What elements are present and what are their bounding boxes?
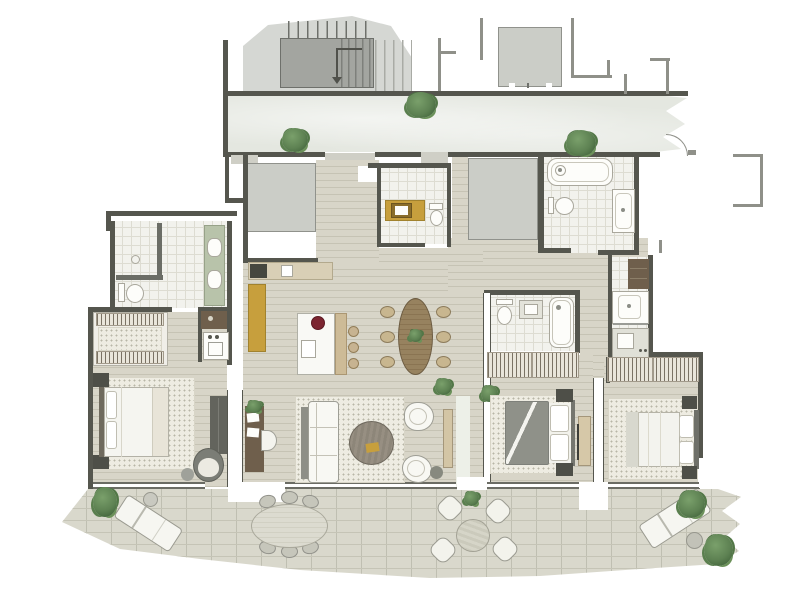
cabinet-shelf-line <box>630 268 647 269</box>
desk-paper <box>247 412 260 422</box>
window-bedroom3 <box>604 482 700 489</box>
shaft1-left-wall <box>243 155 248 263</box>
nightstand <box>682 466 697 479</box>
corridor-top-wall <box>223 91 688 96</box>
wall-fragment <box>659 240 662 253</box>
terrace-door-step <box>579 482 608 510</box>
floor-plan-canvas <box>0 0 800 600</box>
terrace-door-step <box>228 482 285 502</box>
fruit-bowl-icon <box>311 316 325 330</box>
shower-partition-v <box>157 223 162 280</box>
sofa-console <box>301 407 308 479</box>
nightstand <box>93 373 109 387</box>
stair-arrowhead-icon <box>332 77 342 84</box>
dining-chair <box>436 306 451 318</box>
service-shaft-2 <box>468 158 538 240</box>
island-sink-icon <box>301 340 316 358</box>
sofa-cushion-line <box>310 455 337 456</box>
wall-fragment <box>624 74 627 94</box>
stair-direction-arrow-shaft <box>336 48 338 78</box>
wc-bottom-wall <box>379 243 425 247</box>
side-table-small <box>430 466 443 479</box>
lounger-side-table <box>686 532 703 549</box>
bistro-table <box>456 519 490 552</box>
vanity-knob <box>644 349 647 352</box>
wall-fragment <box>666 61 669 94</box>
terrace-door-step <box>699 458 718 488</box>
toilet-tank <box>429 203 443 210</box>
closet-rug <box>98 327 162 351</box>
sofa <box>308 401 339 483</box>
bathroom1-bottom-wall-a <box>88 307 172 312</box>
island-wood-strip <box>335 313 347 375</box>
washbasin-icon <box>617 333 634 349</box>
dining-chair <box>380 356 395 368</box>
bed-pillow <box>550 434 569 461</box>
wc-top-wall <box>368 163 451 168</box>
toilet-icon <box>555 197 574 215</box>
toilet-tank <box>118 283 125 302</box>
lounger-side-table <box>143 492 158 507</box>
cooktop-icon <box>250 264 267 278</box>
duvet-fold-line <box>660 412 661 467</box>
elevator-door-tick-left <box>509 83 515 88</box>
service-shaft-1 <box>245 163 316 232</box>
toilet-icon <box>430 210 443 226</box>
armchair-seat-line <box>409 408 427 425</box>
corridor-left-wall-upper <box>223 40 228 93</box>
wall-fragment <box>571 75 612 78</box>
wall-fragment <box>733 204 763 207</box>
media-console <box>443 409 453 468</box>
bath4-left-wall <box>538 155 544 253</box>
elevator-door-centerline <box>527 83 529 88</box>
bath4-bottom-wall-a <box>541 248 571 253</box>
tall-cabinet-gold <box>248 284 266 352</box>
elevator-shaft <box>498 27 562 87</box>
terrace-plant-icon-3 <box>678 490 705 518</box>
lounger-seat-line <box>152 519 166 541</box>
corridor-plant-icon-1 <box>282 128 308 152</box>
gold-tray-icon <box>365 442 379 453</box>
dresser-centerline <box>218 398 219 452</box>
neighbor-wall-horiz <box>225 198 243 203</box>
toilet-icon <box>126 284 144 303</box>
bath4-bottom-wall-b <box>598 250 638 255</box>
duvet-fold-line <box>648 412 649 467</box>
bed-foot-throw <box>626 412 639 467</box>
bed-pillow <box>550 405 569 432</box>
bathroom1-left-wall <box>110 221 115 310</box>
elevator-door-tick-right <box>546 83 552 88</box>
sofa-back-line <box>316 403 317 481</box>
table-centerpiece-icon <box>409 329 422 342</box>
wall-fragment <box>438 51 456 54</box>
side-table <box>181 468 194 481</box>
bedroom2-bed-duvet <box>505 401 549 465</box>
shower-drain-dot <box>627 304 631 308</box>
terrace-plant-icon-4 <box>704 534 733 566</box>
stair-treads-light <box>375 40 412 92</box>
window-bedroom2 <box>487 482 580 489</box>
sofa-cushion-line <box>310 427 337 428</box>
desk-paper <box>247 427 260 437</box>
vanity-knob <box>639 349 642 352</box>
wall-fragment <box>760 154 763 207</box>
washbasin-icon <box>207 238 222 257</box>
nightstand <box>556 389 573 402</box>
swivel-chair-seat <box>198 458 219 477</box>
bath3-cabinet <box>628 259 649 289</box>
shower-glass-line <box>613 323 648 325</box>
wc-right-wall <box>447 163 451 247</box>
entry-right-wall <box>377 163 381 247</box>
bed-headboard <box>571 400 575 466</box>
laundry-cabinet <box>201 311 227 329</box>
wall-pier <box>457 477 487 490</box>
wardrobe-bedroom2 <box>487 352 579 378</box>
toilet-tank <box>548 197 554 214</box>
bed-foot-throw <box>152 388 168 456</box>
outdoor-oval-table <box>251 504 328 548</box>
terrace-plant-icon-2 <box>464 491 479 506</box>
kitchen-sink-icon <box>281 265 293 277</box>
stair-balustrade <box>288 21 374 38</box>
corridor-plant-icon-2 <box>406 92 436 118</box>
shower-partition-h <box>116 275 163 280</box>
cabinet-shelf-line <box>630 278 647 279</box>
wall-fragment <box>571 18 574 78</box>
bed-pillow <box>679 415 694 438</box>
corridor-left-wall <box>223 95 228 153</box>
bed-pillow <box>679 441 694 464</box>
lounger-backrest-line <box>657 514 672 537</box>
closet-rail-top <box>96 313 164 326</box>
curtain-band <box>456 396 470 487</box>
wardrobe-divider <box>652 358 654 381</box>
stair-direction-arrow <box>336 48 362 50</box>
bed-pillow <box>106 421 117 449</box>
neighbor-wall-vert <box>225 153 229 201</box>
nightstand <box>93 455 109 469</box>
tub-drain-dot <box>558 168 562 172</box>
shower-drain-dot <box>621 208 625 212</box>
tv-console <box>578 416 591 466</box>
door-frame-tick <box>688 150 696 155</box>
master-living-partition <box>227 390 243 487</box>
bar-stool <box>348 342 359 353</box>
lounger-backrest-line <box>131 506 146 528</box>
terrace-plant-icon-1 <box>93 487 117 517</box>
entry-niche <box>358 166 378 182</box>
wc-apron-floor <box>379 248 483 263</box>
secondary-doormat <box>421 152 448 163</box>
washer-knob <box>215 335 219 339</box>
tv-icon <box>577 424 579 460</box>
outdoor-chair <box>281 491 298 504</box>
suite-top-wall <box>106 211 237 216</box>
tub-drain-dot <box>556 305 561 310</box>
wall-fragment <box>607 60 610 78</box>
bed-pillow <box>106 391 117 419</box>
dining-chair <box>436 331 451 343</box>
washbasin-icon <box>524 304 538 315</box>
nightstand <box>682 396 697 409</box>
laundry-sink-dot <box>208 316 213 321</box>
desk-plant-icon <box>247 400 262 413</box>
nightstand <box>556 463 573 476</box>
washer-knob <box>208 335 212 339</box>
toilet-icon <box>497 306 512 325</box>
wall-fragment <box>733 154 763 157</box>
wc-sink-basin <box>395 206 408 215</box>
wall-fragment <box>480 18 483 60</box>
window-living-room <box>284 482 458 489</box>
wardrobe-divider <box>531 353 533 377</box>
dining-chair <box>380 306 395 318</box>
bar-stool <box>348 326 359 337</box>
duvet-fold-line <box>121 387 122 457</box>
stair-treads-dark <box>341 39 374 87</box>
door-swing-arc <box>666 134 688 156</box>
washer-door <box>208 342 223 356</box>
bedroom2-bedroom3-wall <box>593 378 604 487</box>
bathtub-inner-line <box>552 300 571 345</box>
wall-fragment <box>438 38 441 91</box>
living-plant-icon-1 <box>435 378 452 395</box>
armchair-seat-line <box>407 460 425 477</box>
closet-rail-bottom <box>96 351 164 364</box>
dining-chair <box>380 331 395 343</box>
washbasin-icon <box>207 270 222 289</box>
dining-chair <box>436 356 451 368</box>
bath2-top-wall <box>484 290 580 295</box>
bath2-right-wall <box>575 293 580 353</box>
toilet-tank <box>496 299 513 305</box>
bar-stool <box>348 358 359 369</box>
shower-drain-icon <box>131 255 140 264</box>
corridor-plant-icon-3 <box>566 130 596 156</box>
